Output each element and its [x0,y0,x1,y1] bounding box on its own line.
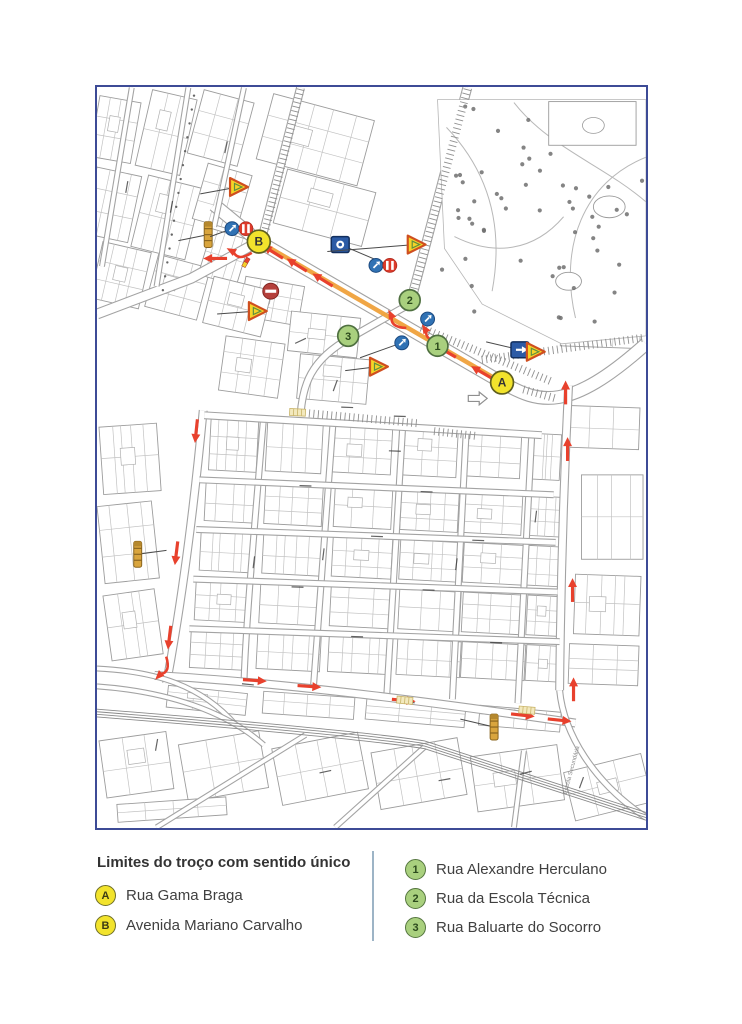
bluecircle-icon [369,258,383,272]
svg-text:B: B [255,235,264,249]
grayarrow-icon [468,392,487,405]
warning-icon [527,343,545,361]
bollard-icon [134,541,142,567]
bluecircle-icon [225,222,239,236]
marker-2: 2 [399,290,420,311]
bluecircle-icon [421,312,435,326]
redstriped-icon [383,258,397,272]
legend-item-label: Rua Gama Braga [126,887,243,904]
legend-item-avenida-mariano-carvalho: B Avenida Mariano Carvalho [95,915,303,936]
park [438,100,646,344]
noentry-icon [263,283,279,299]
legend: Limites do troço com sentido único A Rua… [0,848,742,958]
marker-3: 3 [338,325,359,346]
badge-1-icon: 1 [405,859,426,880]
flow-arrow [170,541,182,566]
svg-text:A: A [498,376,507,390]
legend-item-label: Rua da Escola Técnica [436,890,590,907]
legend-item-label: Rua Alexandre Herculano [436,861,607,878]
legend-divider [372,851,374,941]
marker-1: 1 [427,335,448,356]
badge-3-icon: 3 [405,917,426,938]
marker-B: B [247,230,270,253]
svg-text:1: 1 [434,341,440,353]
legend-item-rua-da-escola-tecnica: 2 Rua da Escola Técnica [405,888,590,909]
bluecircle-icon [395,336,409,350]
badge-A-icon: A [95,885,116,906]
city-map-frame: BA123Escola Secundária [95,85,648,830]
crosswalk-icon [519,706,535,714]
legend-item-rua-baluarte-do-socorro: 3 Rua Baluarte do Socorro [405,917,601,938]
crosswalk-icon [397,696,413,704]
page: { "legend": { "title": "Limites do troço… [0,0,742,1024]
legend-item-label: Avenida Mariano Carvalho [126,917,303,934]
badge-2-icon: 2 [405,888,426,909]
crosswalk-icon [289,408,305,416]
legend-item-label: Rua Baluarte do Socorro [436,919,601,936]
svg-text:2: 2 [407,295,413,307]
legend-item-rua-gama-braga: A Rua Gama Braga [95,885,243,906]
legend-item-rua-alexandre-herculano: 1 Rua Alexandre Herculano [405,859,607,880]
bollard-icon [490,714,498,740]
badge-B-icon: B [95,915,116,936]
bollard-icon [204,222,212,248]
marker-A: A [491,371,514,394]
warning-icon [370,358,388,376]
svg-text:3: 3 [345,331,351,343]
legend-title: Limites do troço com sentido único [97,854,350,871]
city-map: BA123Escola Secundária [97,87,646,828]
